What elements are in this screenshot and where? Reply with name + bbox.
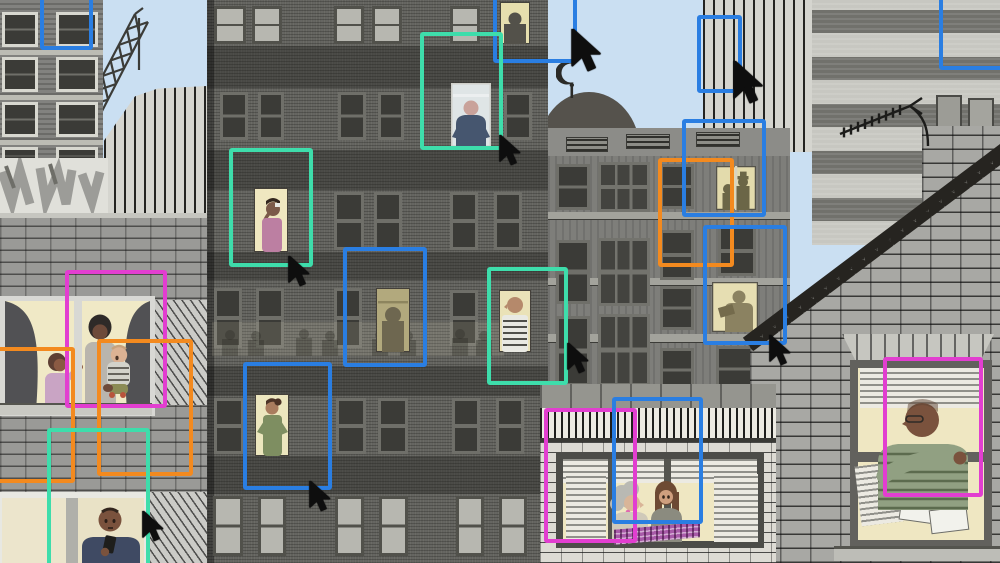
window [334, 192, 364, 250]
envelope [929, 506, 970, 534]
window [334, 6, 364, 44]
window-two-silhouettes [716, 166, 756, 210]
window [598, 314, 650, 386]
window [379, 496, 408, 556]
building-edge [207, 0, 214, 563]
block-row [540, 384, 776, 408]
window [556, 164, 590, 210]
window [372, 6, 402, 44]
faint-crowd-band [212, 322, 504, 356]
window [598, 162, 650, 212]
floor-band [207, 46, 548, 88]
window [213, 496, 243, 556]
window [56, 12, 98, 47]
window-drinking-woman [254, 188, 288, 252]
floor-band [207, 252, 548, 280]
floor-band [207, 366, 548, 396]
window [214, 398, 244, 454]
graffiti-panel [0, 158, 108, 215]
window [660, 164, 694, 209]
tv-antenna-icon [836, 92, 936, 148]
window [335, 496, 364, 556]
window [556, 240, 590, 304]
blind-panel [566, 476, 606, 542]
hatched-panel [152, 300, 207, 405]
window-navy-man [451, 83, 491, 147]
window [496, 398, 524, 454]
window [258, 92, 284, 140]
crescent-finial-icon [556, 60, 590, 100]
floor-ledge [548, 212, 790, 219]
illustration-canvas [0, 0, 1000, 563]
window-dim-silhouette [376, 288, 410, 352]
window [456, 496, 484, 556]
window-sill [0, 403, 152, 415]
window [556, 316, 590, 386]
window [660, 286, 694, 330]
window [258, 496, 286, 556]
window [2, 57, 38, 92]
window [56, 102, 98, 137]
window-sill [834, 546, 1000, 561]
window [374, 192, 402, 250]
sill-band [0, 50, 103, 55]
phone-man [80, 500, 142, 563]
window [452, 398, 480, 454]
window [450, 192, 478, 250]
striped-fascia [540, 408, 776, 438]
window [220, 92, 248, 140]
window [450, 6, 480, 44]
floor-band [207, 150, 548, 190]
window-mullion [66, 498, 78, 563]
window [494, 192, 522, 250]
window [56, 57, 98, 92]
sill-band [0, 95, 103, 100]
window [2, 12, 38, 47]
window [499, 496, 527, 556]
sill-band [0, 140, 103, 145]
roof-vent [626, 134, 670, 149]
floor-band [207, 456, 548, 494]
window [598, 238, 650, 306]
blind-panel [714, 474, 758, 542]
window [2, 102, 38, 137]
window-rooftop-silhouette [500, 2, 530, 44]
window-reading-person [712, 282, 758, 332]
window [378, 92, 404, 140]
window [336, 398, 366, 454]
roofline-trim [0, 213, 207, 218]
window [252, 6, 282, 44]
window-green-woman [255, 394, 289, 456]
old-man-striped-jumper [862, 390, 984, 510]
window [718, 226, 756, 276]
roof-vent [566, 137, 608, 152]
window [660, 230, 694, 280]
window [504, 92, 532, 140]
window [338, 92, 366, 140]
center-building [207, 0, 548, 563]
window [214, 6, 246, 44]
left-tower [0, 0, 103, 165]
roof-vent [696, 132, 740, 147]
window-pane [2, 498, 66, 563]
window [378, 398, 408, 454]
hatched-panel [150, 492, 207, 563]
family-window [0, 296, 155, 416]
window-striped-man [499, 290, 531, 352]
